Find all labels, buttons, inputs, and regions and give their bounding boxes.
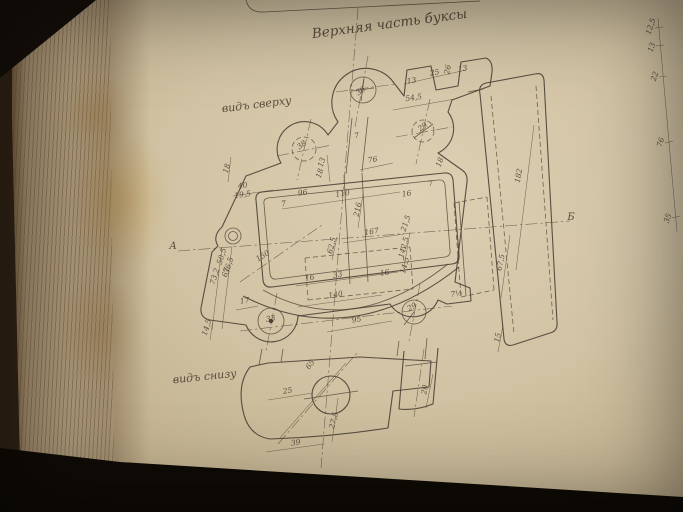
dim-label: 95 [351,314,362,324]
dim-label: 36 [354,84,367,97]
dim-label: 26 [442,64,453,76]
dim-label: 62,5 [325,236,338,255]
dim-label: 22 [649,70,661,83]
view-top-caption: видъ сверху [221,94,293,116]
dim-label: 17 [239,295,250,305]
dim-label: 13 [316,156,328,168]
dim-label: 20 [419,384,430,396]
drawing-linework: Верхняя часть буксы видъ сверху видъ сни… [0,0,683,512]
dim-label: 216 [351,201,363,218]
dim-label: 14,5 [398,256,411,275]
dim-label: 16 [379,267,390,277]
dim-label: 13 [406,75,417,85]
dim-label: 25 [428,67,440,78]
dim-label: 7 [428,179,434,189]
dim-label: 7 [281,199,287,209]
dim-label: 96 [297,187,308,197]
dim-label: 7 [354,131,360,141]
dim-label: 7½ [450,288,463,299]
dim-label: 25 [281,385,293,396]
dim-label: 13 [457,63,468,73]
dim-label: 33 [332,269,343,279]
dim-label: 39 [290,437,301,447]
dim-label: 19,5 [234,189,252,201]
adjacent-drawing-ruler [655,18,680,232]
dim-label: 16 [304,272,315,282]
dim-label: 140 [328,289,344,300]
dim-label: 16 [401,188,412,198]
right-guide-bar [454,74,557,346]
dim-label: 182 [513,168,524,184]
view-bottom-caption: видъ снизу [172,367,238,387]
drawing-title: Верхняя часть буксы [310,6,468,42]
dim-label: 13 [646,41,658,53]
dim-label: 12,5 [644,17,658,36]
dim-label: 76 [367,154,378,164]
dimension-labels: 1325261354,53629387187182184019,59611071… [200,17,674,448]
section-letter-b: Б [566,212,575,223]
section-letter-a: А [168,241,177,252]
bottom-view-outline [241,338,438,439]
dim-label: 29 [415,120,429,134]
dim-label: 35 [662,212,674,224]
dim-label: 21,5 [398,214,412,234]
dim-label: 167 [364,226,380,237]
dim-label: 76 [655,136,667,148]
dim-label: 54,5 [405,92,423,104]
dim-label: 33 [265,313,276,323]
dim-label: 14,5 [200,318,214,337]
dim-label: 18 [221,162,232,174]
dim-label: 110 [335,188,351,199]
photo-of-technical-drawing: Верхняя часть буксы видъ сверху видъ сни… [0,0,683,512]
